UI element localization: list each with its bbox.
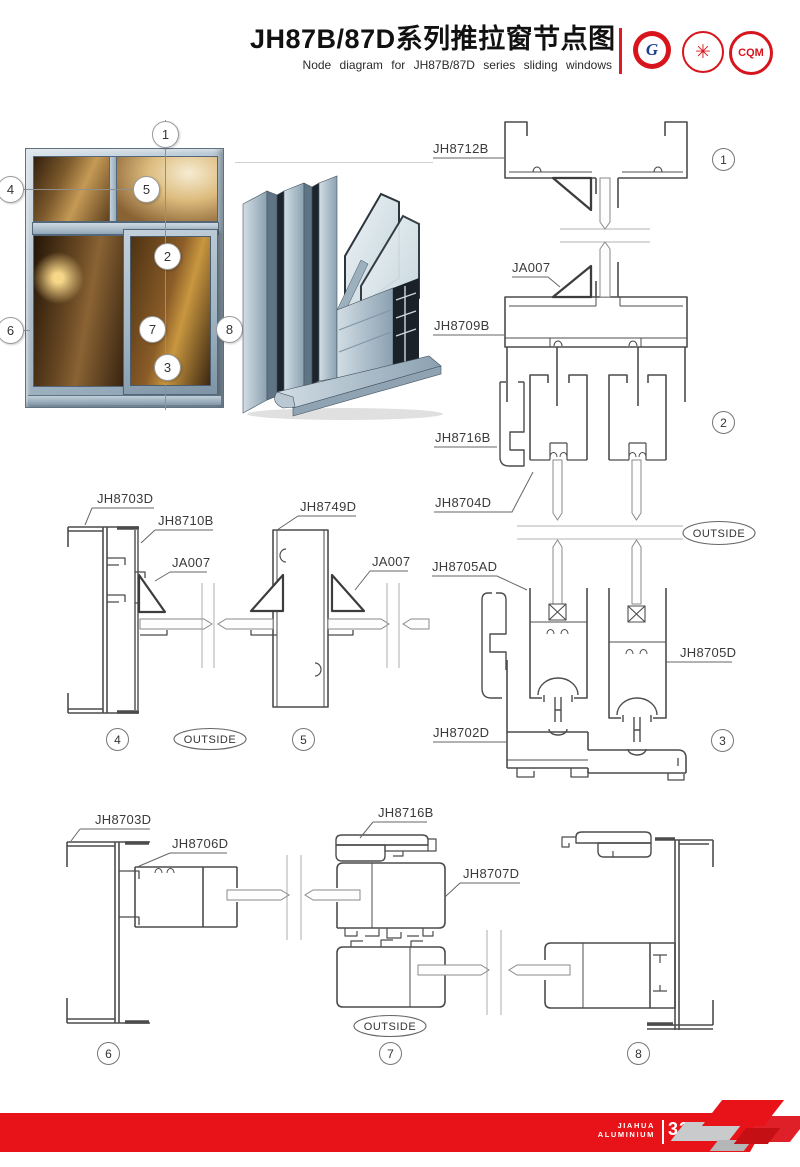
detail-number-8: 8 bbox=[627, 1042, 650, 1065]
footer-divider bbox=[662, 1120, 664, 1144]
detail-number-3: 3 bbox=[711, 729, 734, 752]
outside-label: OUTSIDE bbox=[184, 734, 236, 746]
catalog-page: JH87B/87D系列推拉窗节点图 Node diagram for JH87B… bbox=[0, 0, 800, 1167]
section-horizontal-assembly: OUTSIDE bbox=[55, 795, 755, 1065]
part-label-jh8709b: JH8709B bbox=[434, 318, 490, 333]
part-label-jh8712b: JH8712B bbox=[433, 141, 489, 156]
header: JH87B/87D系列推拉窗节点图 Node diagram for JH87B… bbox=[250, 22, 612, 72]
part-label-jh8749d: JH8749D bbox=[300, 499, 356, 514]
part-label-jh8716b-1: JH8716B bbox=[435, 430, 491, 445]
detail-number-2: 2 bbox=[712, 411, 735, 434]
callout-4: 4 bbox=[0, 176, 24, 203]
part-label-ja007-3: JA007 bbox=[372, 554, 410, 569]
callout-2: 2 bbox=[154, 243, 181, 270]
cqm-logo: CQM bbox=[729, 31, 773, 75]
part-label-jh8703d-2: JH8703D bbox=[95, 812, 151, 827]
callout-6: 6 bbox=[0, 317, 24, 344]
part-label-ja007-2: JA007 bbox=[172, 555, 210, 570]
part-label-jh8707d: JH8707D bbox=[463, 866, 519, 881]
header-divider bbox=[619, 28, 622, 74]
detail-number-6: 6 bbox=[97, 1042, 120, 1065]
page-subtitle: Node diagram for JH87B/87D series slidin… bbox=[250, 58, 612, 72]
outside-label: OUTSIDE bbox=[364, 1021, 416, 1033]
callout-5: 5 bbox=[133, 176, 160, 203]
part-label-jh8703d-1: JH8703D bbox=[97, 491, 153, 506]
star-seal-logo: ✳ bbox=[682, 31, 724, 73]
footer-band bbox=[0, 1113, 772, 1152]
detail-number-7: 7 bbox=[379, 1042, 402, 1065]
gb-certification-logo: G bbox=[633, 31, 671, 69]
detail-number-1: 1 bbox=[712, 148, 735, 171]
profile-3d-render bbox=[233, 160, 448, 422]
part-label-jh8705d: JH8705D bbox=[680, 645, 736, 660]
part-label-jh8705ad: JH8705AD bbox=[432, 559, 497, 574]
detail-number-4: 4 bbox=[106, 728, 129, 751]
part-label-jh8706d: JH8706D bbox=[172, 836, 228, 851]
window-photo bbox=[25, 148, 224, 408]
outside-label: OUTSIDE bbox=[693, 528, 745, 540]
callout-line-4-5 bbox=[8, 189, 148, 190]
photo-pane-bottom-left bbox=[33, 235, 131, 387]
part-label-ja007-1: JA007 bbox=[512, 260, 550, 275]
footer-brand: JIAHUA ALUMINIUM bbox=[540, 1121, 655, 1139]
callout-7: 7 bbox=[139, 316, 166, 343]
photo-bottom-rail bbox=[28, 395, 221, 405]
callout-3: 3 bbox=[154, 354, 181, 381]
part-label-jh8702d: JH8702D bbox=[433, 725, 489, 740]
page-title: JH87B/87D系列推拉窗节点图 bbox=[250, 22, 612, 56]
part-label-jh8710b: JH8710B bbox=[158, 513, 214, 528]
detail-number-5: 5 bbox=[292, 728, 315, 751]
section-vertical-assembly: OUTSIDE bbox=[430, 110, 800, 780]
part-label-jh8704d: JH8704D bbox=[435, 495, 491, 510]
part-label-jh8716b-2: JH8716B bbox=[378, 805, 434, 820]
callout-1: 1 bbox=[152, 121, 179, 148]
